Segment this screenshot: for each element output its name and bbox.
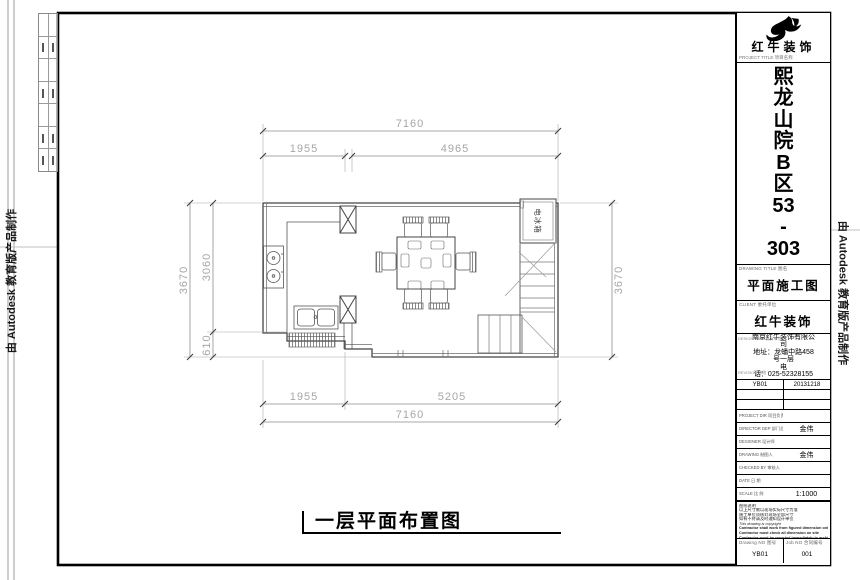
row-checked-by: CHECKED BY 审核人	[737, 462, 830, 475]
floor-plan: 电冰箱	[263, 199, 558, 357]
dim-top-left: 1955	[290, 143, 318, 155]
staircase	[478, 242, 556, 353]
column-hatched-top	[340, 206, 356, 233]
kitchen-counter	[287, 222, 340, 333]
number-section: Drawing NO 图号 YB01 Job NO 合同编号 001	[737, 539, 830, 563]
drawing-title-label: DRAWING TITLE 图名	[737, 265, 830, 272]
dim-top-right: 4965	[441, 143, 469, 155]
row-director: DIRECTOR DEP 部门总监 金伟	[737, 423, 830, 436]
job-no-cell: Job NO 合同编号 001	[784, 539, 830, 563]
autodesk-educational-note-left: 由 Autodesk 教育版产品制作	[3, 196, 19, 366]
plan-caption: 一层平面布置图	[303, 509, 561, 533]
redniu-bull-logo-icon	[764, 15, 804, 41]
project-char: B	[776, 153, 790, 175]
drawing-no-label: Drawing NO 图号	[737, 539, 783, 546]
project-char: 龙	[774, 88, 794, 110]
revision-label: REVISION 修改	[738, 370, 766, 376]
dining-table	[397, 237, 455, 289]
personnel-rows: PROJECT DIR 项目负责人 DIRECTOR DEP 部门总监 金伟 D…	[737, 410, 830, 501]
dim-bottom-right: 5205	[438, 391, 466, 403]
fridge-label: 电冰箱	[533, 208, 543, 234]
plan-caption-text: 一层平面布置图	[315, 509, 462, 532]
client-name: 红牛装饰	[737, 311, 830, 330]
drawing-no-value: YB01	[737, 546, 783, 563]
title-block: 红牛装饰 PROJECT TITLE 项目名称 熙 龙 山 院 B 区 53 -…	[735, 13, 830, 565]
row-drawing: DRAWING 制图人 金伟	[737, 449, 830, 462]
row-designer: DESIGNER 设计师	[737, 436, 830, 449]
design-firm-label: DESIGN FIRM 设计单位	[738, 336, 781, 342]
dim-top-total: 7160	[396, 118, 424, 130]
floor-plan-canvas: 电冰箱	[0, 0, 860, 580]
revision-code: YB01	[737, 380, 784, 389]
project-char: 区	[774, 174, 794, 196]
dim-left-upper: 3060	[201, 253, 213, 281]
autodesk-educational-note-right: 由 Autodesk 教育版产品制作	[836, 181, 852, 406]
revision-date: 20131218	[784, 380, 830, 389]
revision-stamp-table	[38, 13, 58, 172]
project-char: -	[780, 217, 787, 239]
brand-section: 红牛装饰 PROJECT TITLE 项目名称	[737, 13, 830, 63]
project-name: 熙 龙 山 院 B 区 53 - 303	[737, 63, 830, 265]
client-section: CLIENT 委托单位 红牛装饰	[737, 301, 830, 334]
cad-sheet: 电冰箱	[0, 0, 860, 580]
project-char: 53	[772, 196, 794, 218]
client-label: CLIENT 委托单位	[737, 301, 830, 308]
firm-line: 司	[737, 341, 830, 348]
revision-table: YB01 20131218	[737, 380, 830, 410]
row-date: DATE 日 期	[737, 475, 830, 488]
design-firm-section: DESIGN FIRM 设计单位 REVISION 修改 南京红牛装饰有限公 司…	[737, 334, 830, 380]
job-no-value: 001	[784, 546, 830, 563]
row-scale: SCALE 比 例 1:1000	[737, 488, 830, 500]
refrigerator: 电冰箱	[520, 199, 556, 243]
drawing-title: 平面施工图	[737, 275, 830, 294]
project-title-label: PROJECT TITLE 项目名称	[737, 55, 793, 61]
dim-left-lower: 610	[201, 334, 213, 355]
dim-bottom-total: 7160	[396, 409, 424, 421]
drawing-no-cell: Drawing NO 图号 YB01	[737, 539, 784, 563]
project-char: 山	[774, 110, 794, 132]
dim-right-total: 3670	[613, 266, 625, 294]
row-project-dir: PROJECT DIR 项目负责人	[737, 410, 830, 423]
project-char: 303	[767, 239, 800, 261]
project-char: 熙	[774, 67, 794, 89]
sheet-edges	[0, 0, 860, 580]
brand-name: 红牛装饰	[751, 41, 815, 53]
sink-platform-hatch	[289, 333, 335, 347]
kitchen-sink	[294, 306, 338, 329]
drawing-title-section: DRAWING TITLE 图名 平面施工图	[737, 265, 830, 301]
job-no-label: Job NO 合同编号	[784, 539, 830, 546]
project-char: 院	[774, 131, 794, 153]
firm-line: 号一层	[737, 356, 830, 363]
dim-left-total: 3670	[178, 266, 190, 294]
dim-bottom-left: 1955	[290, 391, 318, 403]
notes-section: 图纸说明 以上尺寸需以现场实际尺寸为准 施工单位须核对现场全部尺寸 如有不符请及…	[737, 501, 830, 539]
